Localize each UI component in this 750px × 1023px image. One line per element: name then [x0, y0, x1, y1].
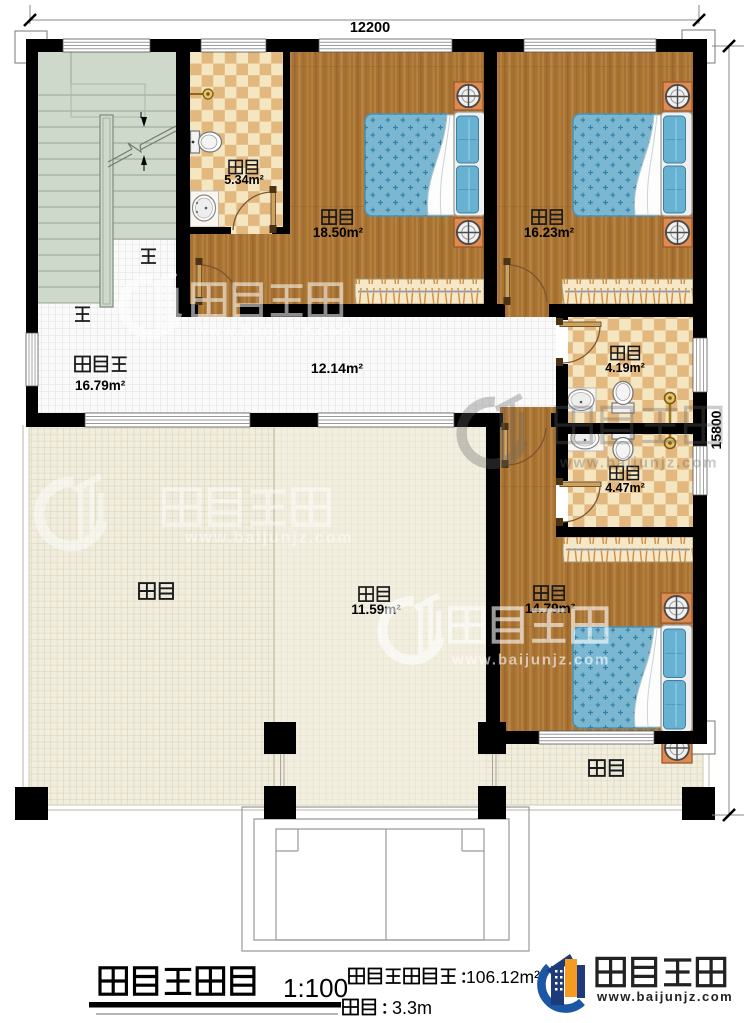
- svg-text:106.12m²: 106.12m²: [466, 967, 540, 987]
- svg-text:12200: 12200: [350, 20, 390, 36]
- svg-text:www.baijunjz.com: www.baijunjz.com: [451, 651, 610, 668]
- svg-text:16.23m²: 16.23m²: [524, 225, 575, 240]
- svg-text:1:100: 1:100: [283, 973, 348, 1003]
- svg-text:3.3m: 3.3m: [392, 998, 432, 1018]
- svg-text:4.47m²: 4.47m²: [605, 481, 645, 495]
- svg-text:www.baijunjz.com: www.baijunjz.com: [559, 454, 718, 471]
- svg-text:16.79m²: 16.79m²: [75, 378, 126, 393]
- svg-text:www.baijunjz.com: www.baijunjz.com: [184, 530, 354, 547]
- svg-text:12.14m²: 12.14m²: [311, 360, 363, 376]
- svg-text:18.50m²: 18.50m²: [313, 225, 364, 240]
- svg-text:www.baijunjz.com: www.baijunjz.com: [195, 322, 354, 339]
- svg-text:www.baijunjz.com: www.baijunjz.com: [596, 989, 733, 1004]
- svg-text:5.34m²: 5.34m²: [224, 173, 264, 187]
- svg-text:4.19m²: 4.19m²: [605, 361, 645, 375]
